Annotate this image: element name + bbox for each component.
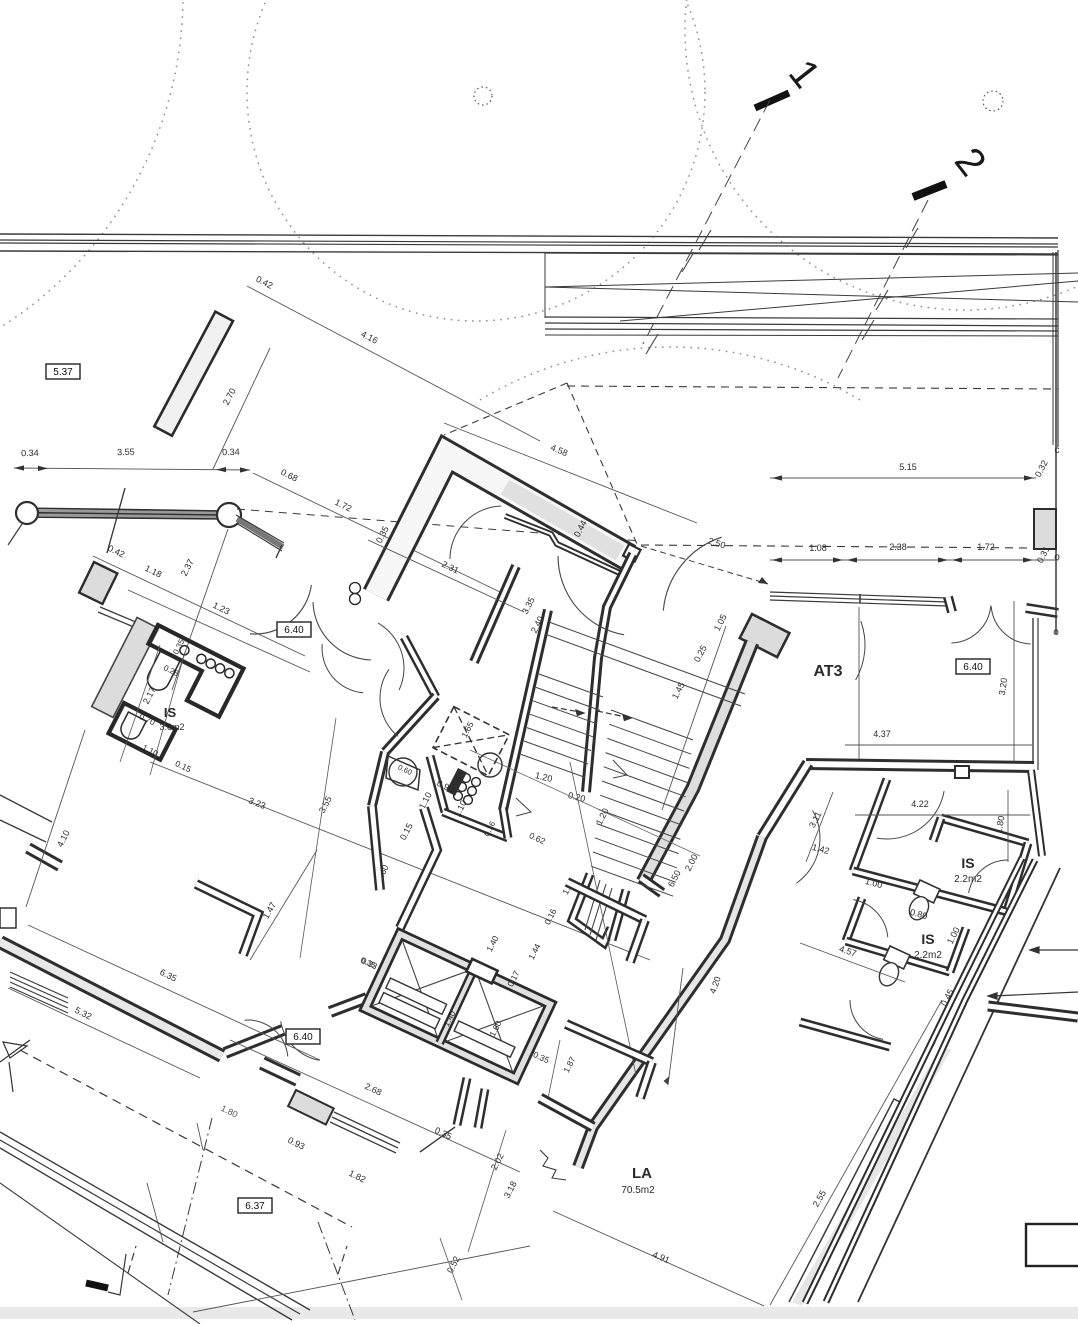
svg-text:6.40: 6.40 [293, 1032, 313, 1043]
svg-text:0.34: 0.34 [222, 447, 240, 458]
svg-text:6.40: 6.40 [963, 662, 983, 673]
svg-text:c: c [1055, 445, 1060, 456]
svg-text:o: o [1053, 627, 1059, 638]
svg-text:6.40: 6.40 [284, 625, 304, 636]
svg-text:IS: IS [164, 705, 177, 720]
svg-text:1.08: 1.08 [809, 543, 827, 553]
svg-text:4.22: 4.22 [911, 799, 929, 809]
svg-text:AT3: AT3 [813, 663, 842, 680]
svg-text:0.34: 0.34 [21, 448, 39, 459]
svg-text:2.2m2: 2.2m2 [954, 874, 982, 885]
svg-text:o: o [1054, 552, 1060, 563]
svg-text:70.5m2: 70.5m2 [621, 1185, 655, 1196]
svg-text:4.37: 4.37 [873, 729, 891, 739]
svg-text:5.15: 5.15 [899, 462, 917, 472]
svg-text:6.37: 6.37 [245, 1201, 265, 1212]
svg-text:1.72: 1.72 [977, 542, 995, 552]
svg-text:3.55: 3.55 [117, 447, 135, 458]
svg-text:5.37: 5.37 [53, 367, 73, 378]
svg-text:LA: LA [632, 1165, 652, 1182]
svg-text:IS: IS [921, 931, 934, 947]
svg-text:2.2m2: 2.2m2 [914, 950, 942, 961]
svg-text:2.38: 2.38 [889, 542, 907, 552]
svg-text:IS: IS [961, 855, 974, 871]
